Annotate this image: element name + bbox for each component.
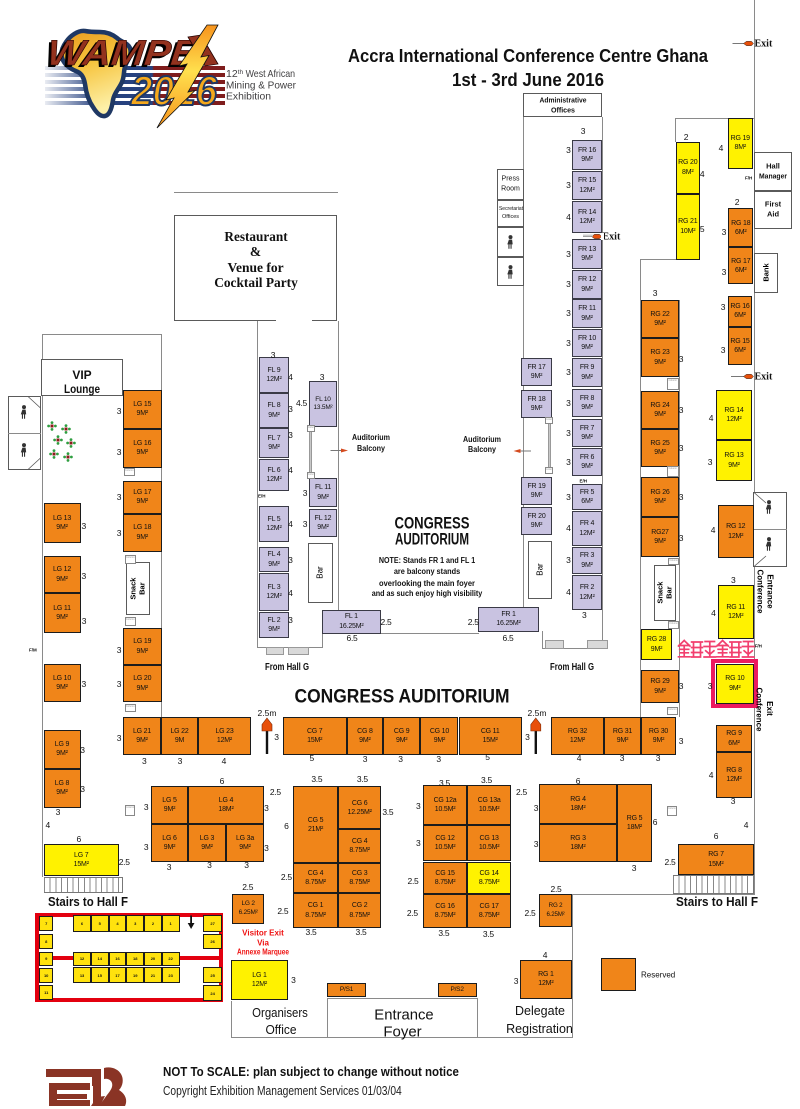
svg-text:12th West African: 12th West African: [226, 68, 295, 80]
svg-text:Exhibition: Exhibition: [226, 91, 271, 103]
